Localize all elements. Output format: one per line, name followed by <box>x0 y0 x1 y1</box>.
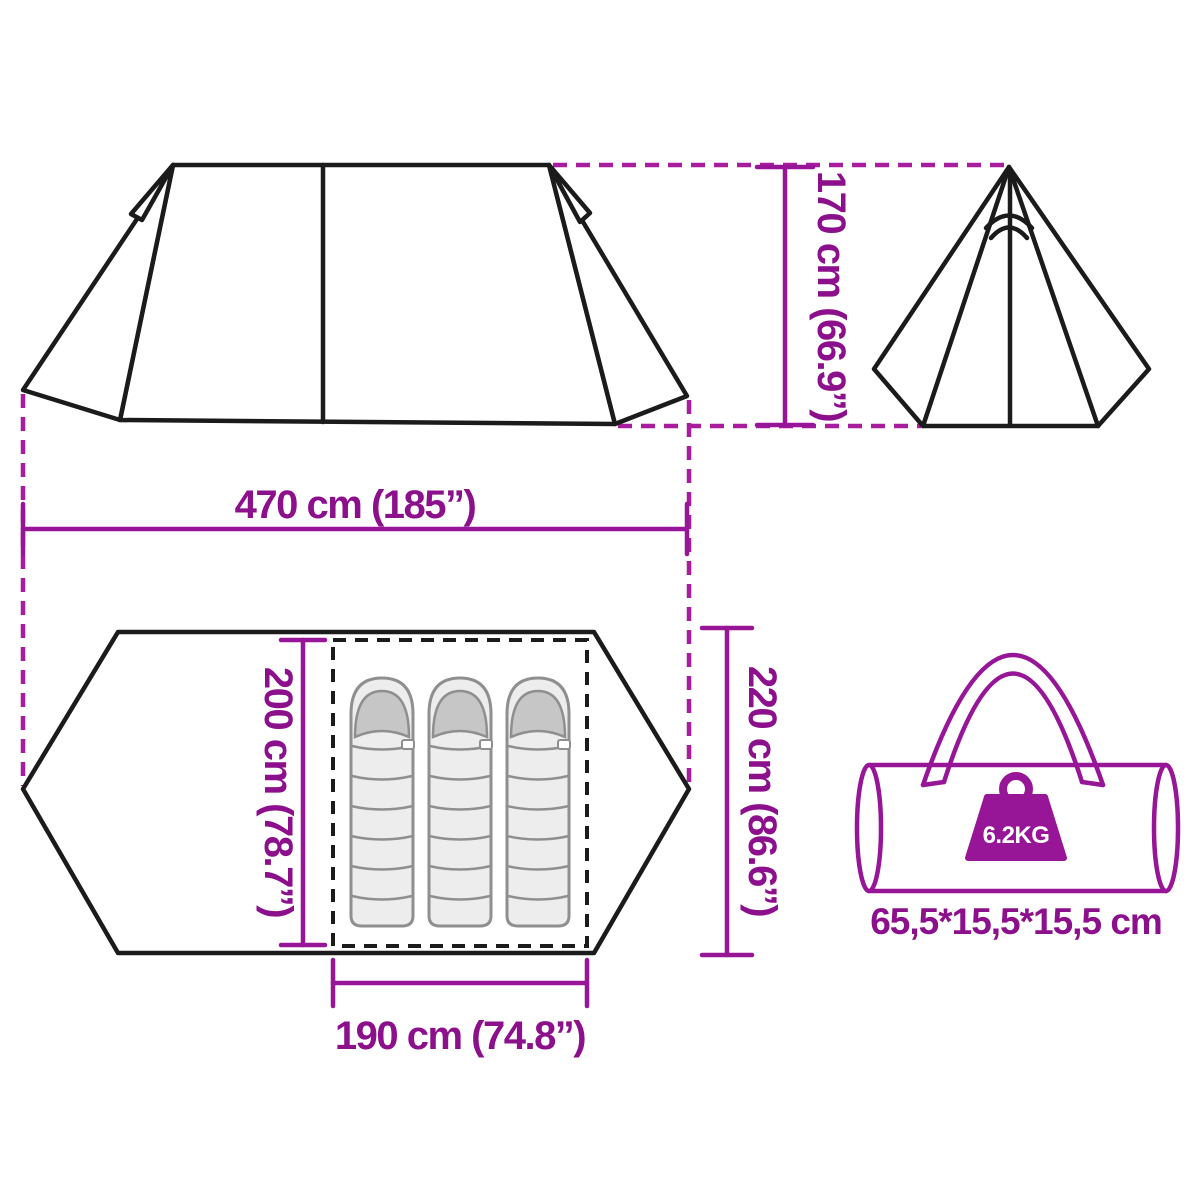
side-view-body <box>120 165 615 424</box>
diagram-canvas: 470 cm (185”) 170 cm (66.9”) 200 cm (78.… <box>0 0 1200 1200</box>
bag-end-right <box>1154 765 1178 891</box>
bag-handle-end-right <box>1082 782 1103 785</box>
tent-front-view <box>874 167 1149 426</box>
weight-value-label: 6.2KG <box>983 822 1050 849</box>
dimension-inner-length-label: 190 cm (74.8”) <box>335 1014 585 1058</box>
tent-top-view <box>23 632 689 953</box>
sleeping-bag-2 <box>429 678 492 926</box>
dimension-inner-length-line <box>333 960 587 1006</box>
weight-kettlebell-icon: 6.2KG <box>968 776 1064 858</box>
dimension-outer-width-label: 220 cm (86.6”) <box>740 666 784 916</box>
dimension-height-line <box>757 167 813 425</box>
dimension-inner-width-label: 200 cm (78.7”) <box>256 667 300 917</box>
dimension-height-label: 170 cm (66.9”) <box>809 171 853 421</box>
bag-handle-end-left <box>923 782 944 785</box>
package-size-label: 65,5*15,5*15,5 cm <box>870 901 1162 942</box>
bag-end-left <box>857 765 881 891</box>
sleeping-bag-1 <box>351 678 414 926</box>
tent-side-view <box>23 165 687 424</box>
product-dimension-diagram: 470 cm (185”) 170 cm (66.9”) 200 cm (78.… <box>0 0 1200 1200</box>
sleeping-bag-3 <box>507 678 570 926</box>
dimension-length-label: 470 cm (185”) <box>235 483 476 527</box>
